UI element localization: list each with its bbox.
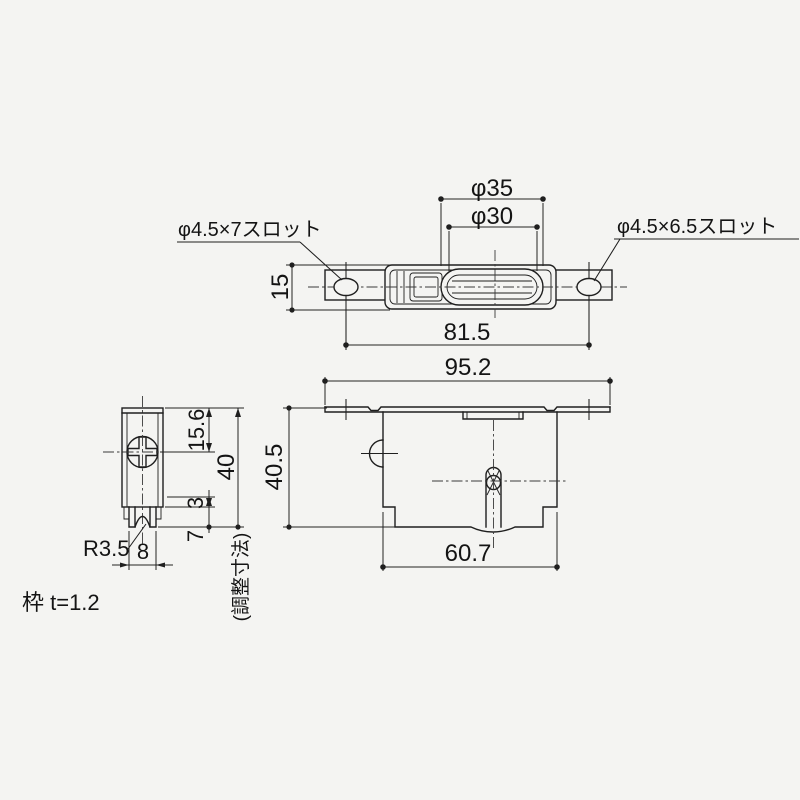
side-view: R3.5 8 15.6 40 3 7 (調整寸法) [83,396,252,621]
left-screw-slot [334,279,358,296]
dim-body-width: 60.7 [445,540,492,567]
dim-screw-offset: 15.6 [184,409,209,452]
dim-adjust-range: 3 [183,497,208,509]
label-left-slot: φ4.5×7スロット [178,219,322,241]
dim-frame-width: 8 [137,539,149,564]
front-view: 95.2 40.5 60.7 [261,354,613,571]
dim-overall-width: 95.2 [445,354,492,381]
dim-wheel-protrusion: 7 [183,530,208,542]
flange-plate [325,407,610,411]
label-adjust-note: (調整寸法) [230,533,252,622]
dim-slot-span: 81.5 [444,319,491,346]
dim-wheel-outer: φ35 [471,175,513,202]
label-right-slot: φ4.5×6.5スロット [617,216,777,238]
frame-thickness-note: 枠 t=1.2 [22,590,100,615]
top-view: φ35 φ30 15 81.5 φ4.5×7スロット φ4.5×6.5スロット [177,175,799,350]
label-groove-radius: R3.5 [83,536,129,561]
sash-roller-drawing: φ35 φ30 15 81.5 φ4.5×7スロット φ4.5×6.5スロット … [0,0,800,800]
dim-frame-height: 40 [213,454,240,481]
dim-plate-height: 15 [267,274,294,301]
dim-overall-height: 40.5 [261,444,288,491]
case-body [383,412,557,532]
dim-wheel-groove: φ30 [471,203,513,230]
technical-drawing-page: φ35 φ30 15 81.5 φ4.5×7スロット φ4.5×6.5スロット … [0,0,800,800]
right-screw-slot [577,279,601,296]
